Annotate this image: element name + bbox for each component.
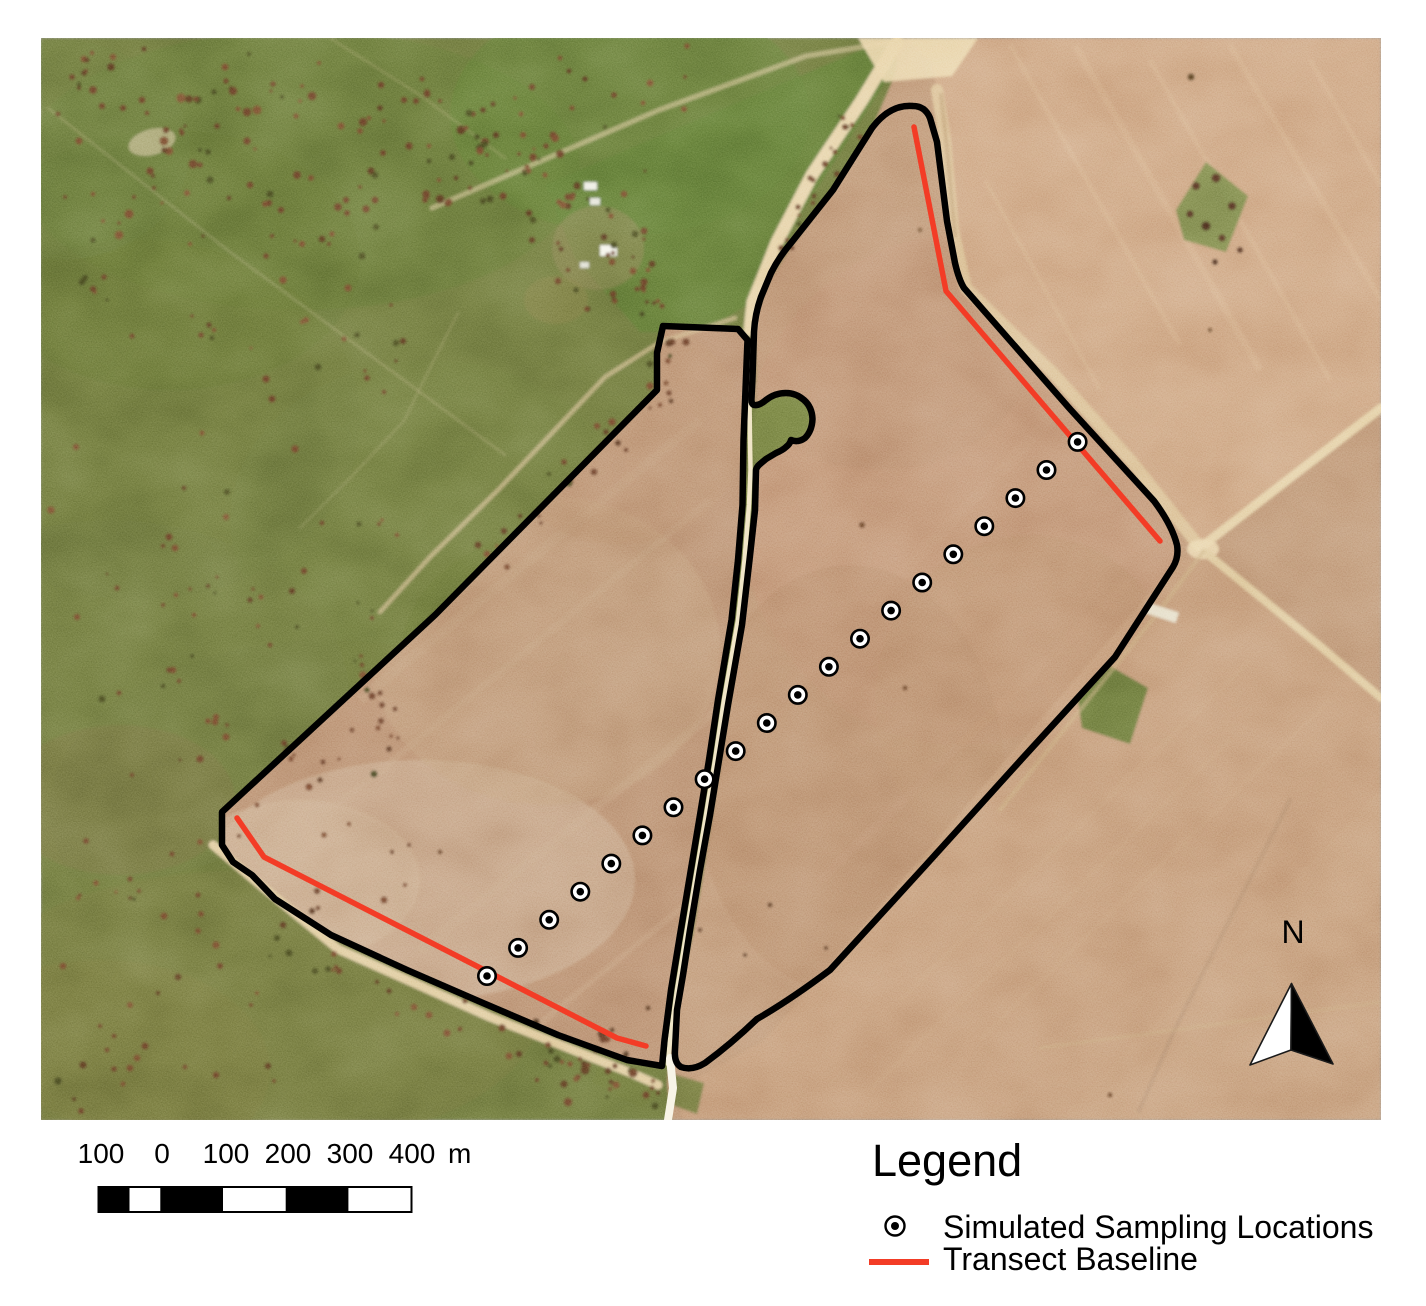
svg-text:0: 0 [154, 1138, 170, 1169]
svg-text:100: 100 [203, 1138, 250, 1169]
svg-text:100: 100 [78, 1138, 125, 1169]
svg-text:Simulated Sampling Locations: Simulated Sampling Locations [943, 1209, 1373, 1245]
svg-text:200: 200 [265, 1138, 312, 1169]
svg-text:Transect Baseline: Transect Baseline [943, 1241, 1198, 1277]
svg-text:400: 400 [389, 1138, 436, 1169]
svg-text:N: N [1281, 914, 1304, 950]
svg-text:300: 300 [327, 1138, 374, 1169]
svg-text:Legend: Legend [872, 1135, 1022, 1186]
svg-text:m: m [448, 1138, 471, 1169]
